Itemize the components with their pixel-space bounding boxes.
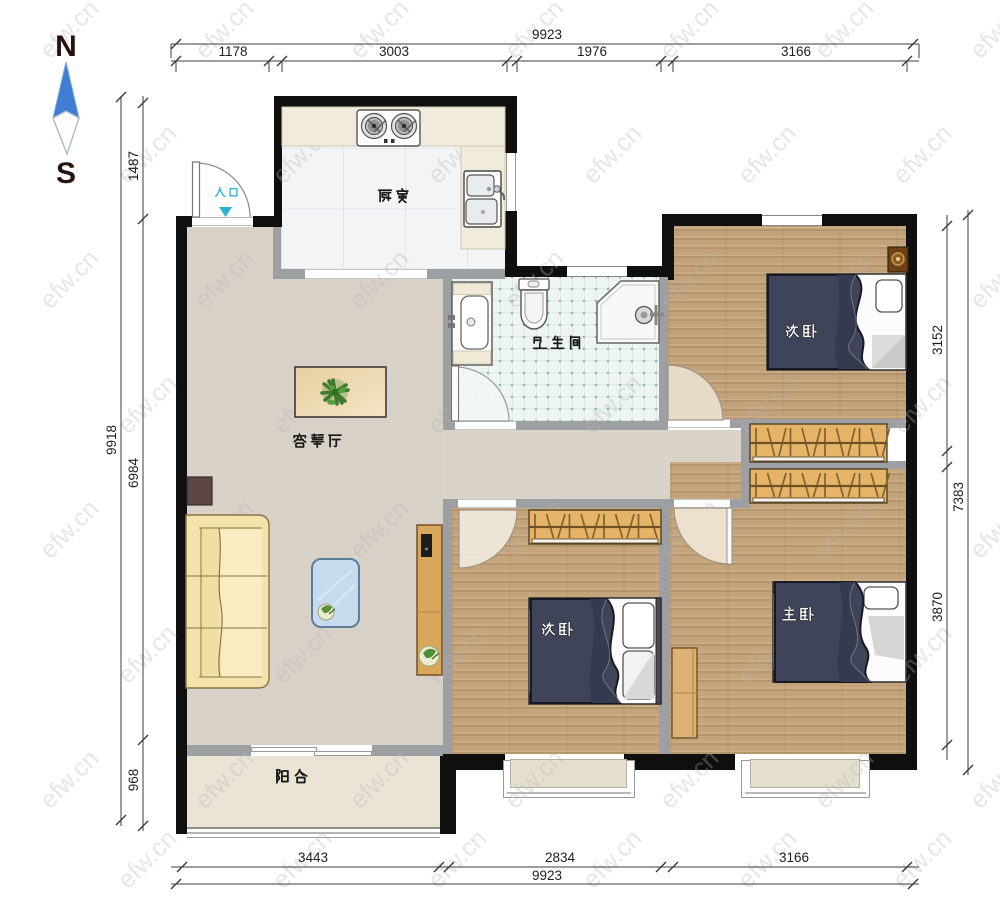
svg-text:efw.cn: efw.cn bbox=[964, 494, 1000, 564]
svg-text:1976: 1976 bbox=[577, 44, 607, 59]
svg-text:efw.cn: efw.cn bbox=[964, 0, 1000, 64]
svg-text:3166: 3166 bbox=[781, 44, 811, 59]
svg-text:968: 968 bbox=[126, 769, 141, 792]
svg-text:3003: 3003 bbox=[379, 44, 409, 59]
svg-text:S: S bbox=[56, 157, 76, 190]
svg-text:efw.cn: efw.cn bbox=[112, 119, 182, 189]
svg-text:3166: 3166 bbox=[779, 850, 809, 865]
svg-text:efw.cn: efw.cn bbox=[344, 744, 414, 814]
svg-text:efw.cn: efw.cn bbox=[654, 244, 724, 314]
svg-text:1178: 1178 bbox=[218, 44, 247, 59]
svg-text:efw.cn: efw.cn bbox=[809, 744, 879, 814]
svg-text:efw.cn: efw.cn bbox=[344, 244, 414, 314]
svg-text:9923: 9923 bbox=[532, 27, 562, 42]
svg-text:9923: 9923 bbox=[532, 868, 562, 883]
svg-text:3152: 3152 bbox=[930, 325, 945, 355]
svg-text:2834: 2834 bbox=[545, 850, 576, 865]
svg-text:efw.cn: efw.cn bbox=[809, 494, 879, 564]
svg-text:efw.cn: efw.cn bbox=[344, 494, 414, 564]
svg-text:3870: 3870 bbox=[930, 592, 945, 622]
svg-text:efw.cn: efw.cn bbox=[809, 0, 879, 64]
svg-text:efw.cn: efw.cn bbox=[34, 744, 104, 814]
svg-text:efw.cn: efw.cn bbox=[34, 244, 104, 314]
svg-text:efw.cn: efw.cn bbox=[267, 619, 337, 689]
svg-text:N: N bbox=[55, 30, 77, 63]
svg-text:efw.cn: efw.cn bbox=[189, 744, 259, 814]
svg-text:efw.cn: efw.cn bbox=[34, 494, 104, 564]
svg-text:3443: 3443 bbox=[298, 850, 328, 865]
svg-text:efw.cn: efw.cn bbox=[887, 119, 957, 189]
svg-text:1487: 1487 bbox=[126, 151, 141, 181]
svg-text:efw.cn: efw.cn bbox=[654, 0, 724, 64]
svg-text:efw.cn: efw.cn bbox=[112, 619, 182, 689]
svg-text:7383: 7383 bbox=[951, 482, 966, 512]
svg-text:efw.cn: efw.cn bbox=[732, 119, 802, 189]
svg-text:efw.cn: efw.cn bbox=[577, 119, 647, 189]
svg-text:efw.cn: efw.cn bbox=[654, 744, 724, 814]
svg-text:efw.cn: efw.cn bbox=[112, 369, 182, 439]
svg-text:efw.cn: efw.cn bbox=[964, 244, 1000, 314]
svg-text:efw.cn: efw.cn bbox=[964, 744, 1000, 814]
svg-text:9918: 9918 bbox=[104, 425, 119, 455]
svg-text:efw.cn: efw.cn bbox=[189, 244, 259, 314]
svg-text:efw.cn: efw.cn bbox=[577, 369, 647, 439]
svg-text:6984: 6984 bbox=[126, 457, 141, 488]
svg-text:efw.cn: efw.cn bbox=[499, 744, 569, 814]
